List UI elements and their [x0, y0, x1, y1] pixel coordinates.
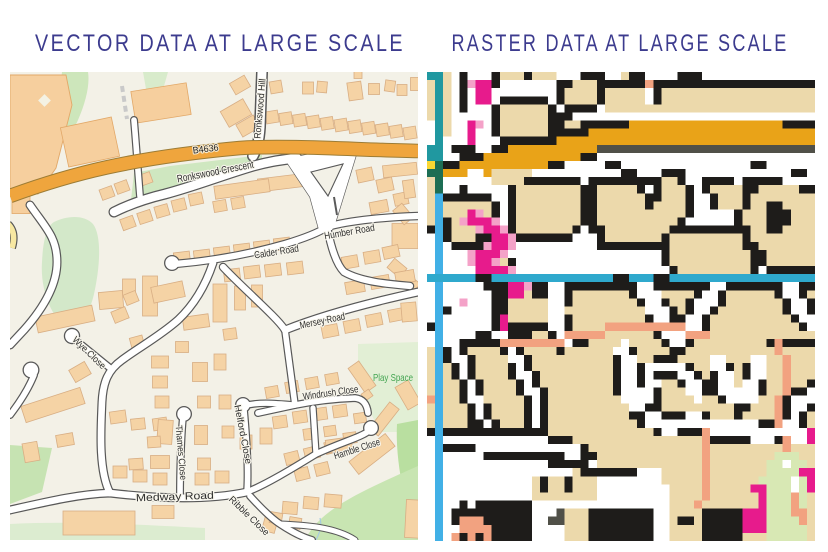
svg-text:RASTER DATA AT LARGE SCALE: RASTER DATA AT LARGE SCALE — [452, 30, 789, 57]
svg-text:VECTOR DATA AT LARGE SCALE: VECTOR DATA AT LARGE SCALE — [35, 30, 405, 57]
svg-text:Play Space: Play Space — [373, 372, 413, 384]
